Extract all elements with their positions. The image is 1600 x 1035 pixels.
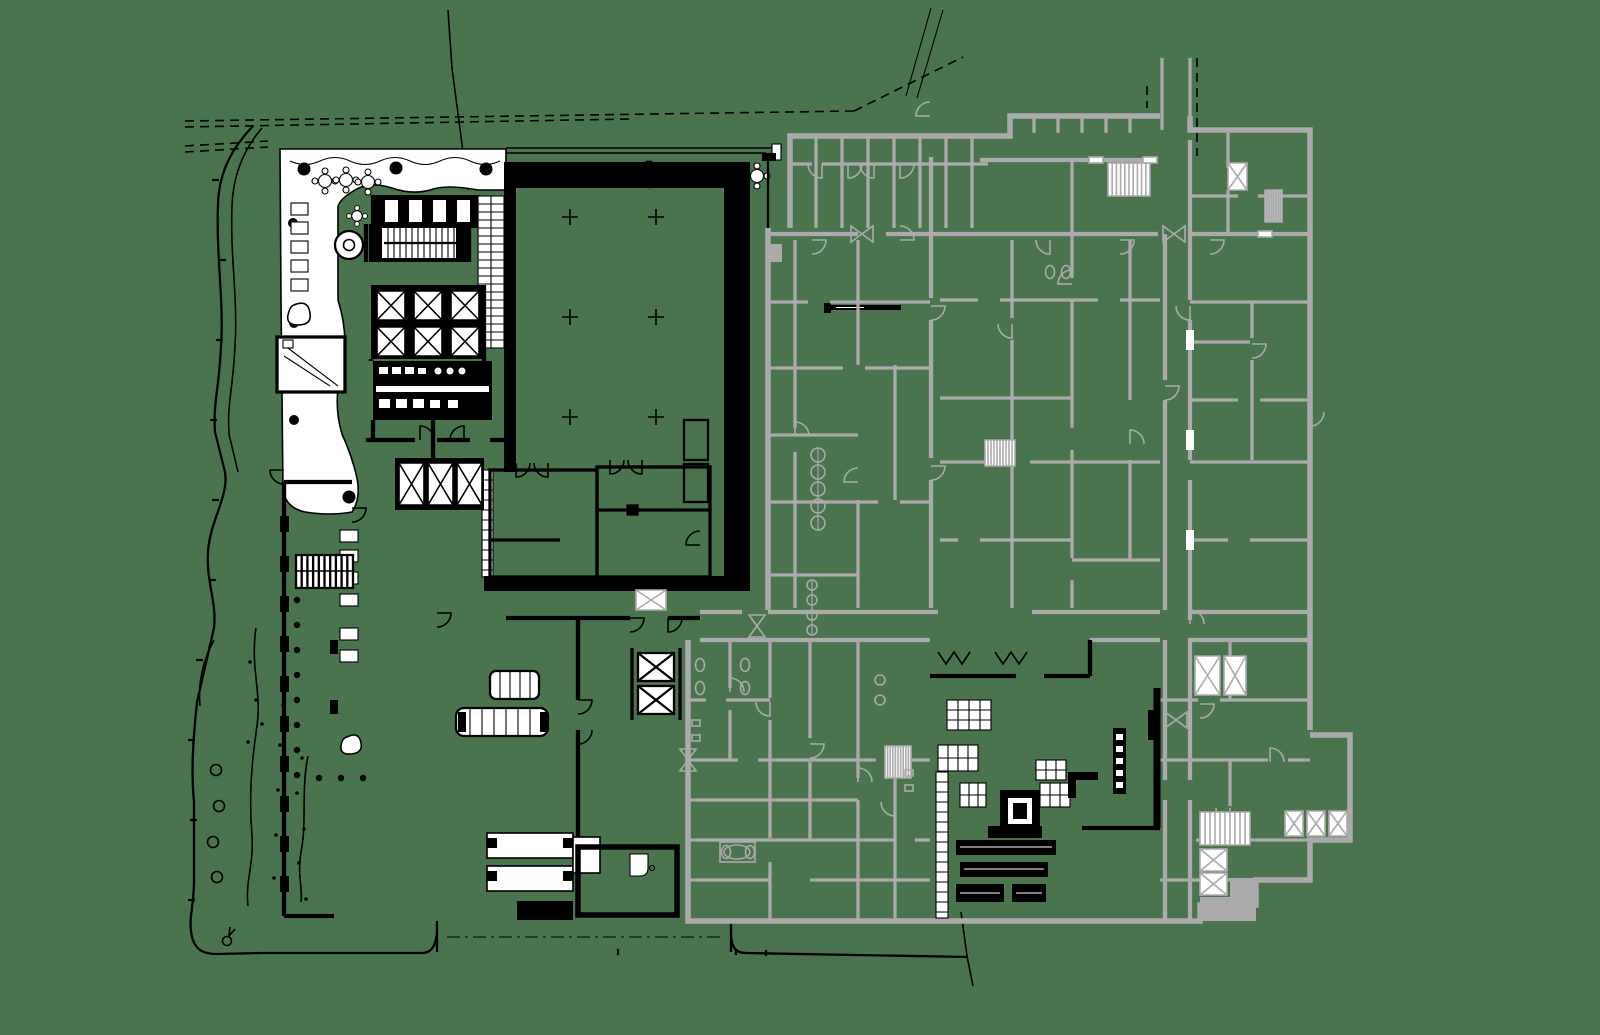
escalator-room [277, 337, 345, 392]
plumbing-risers [807, 448, 825, 635]
floor-plan-drawing [0, 0, 1600, 1035]
kitchen-counters [956, 840, 1056, 902]
floor-plan-canvas [0, 0, 1600, 1035]
restroom-core [373, 361, 492, 420]
new-building-layer [270, 144, 901, 920]
kitchen-shelving [936, 772, 948, 918]
service-elevators [632, 648, 680, 720]
annex-partitions-center [768, 160, 1160, 608]
column-grid-marks [562, 209, 664, 425]
cafe-booths [373, 195, 480, 228]
kitchen-corridor-doors [938, 652, 1027, 664]
kitchen-layer [930, 640, 1160, 918]
property-dashed-lines [185, 57, 1197, 156]
terrace-canopy-line [506, 148, 782, 153]
annex-partitions-rightwing [1190, 302, 1310, 540]
elevator-bank-b [395, 458, 484, 510]
annex-partitions-toilets [688, 640, 930, 920]
stair-b [296, 555, 353, 588]
elevator-bank-a [371, 285, 484, 359]
entry-drive [262, 921, 968, 957]
planting-trees [208, 765, 225, 883]
reception-desk [335, 231, 363, 259]
annex-corridor-risers [1162, 58, 1190, 130]
planting-dots [246, 660, 308, 901]
stairs-gray [885, 163, 1282, 845]
kitchen-equipment [988, 710, 1160, 838]
grand-stair [369, 224, 468, 262]
meeting-rooms [490, 467, 710, 577]
double-swing-doors [680, 226, 1187, 771]
party-wall-cap [762, 153, 776, 161]
survey-diagonal-lines [906, 8, 943, 98]
hydrant-symbol [223, 927, 236, 946]
section-beam-detail [824, 303, 901, 313]
